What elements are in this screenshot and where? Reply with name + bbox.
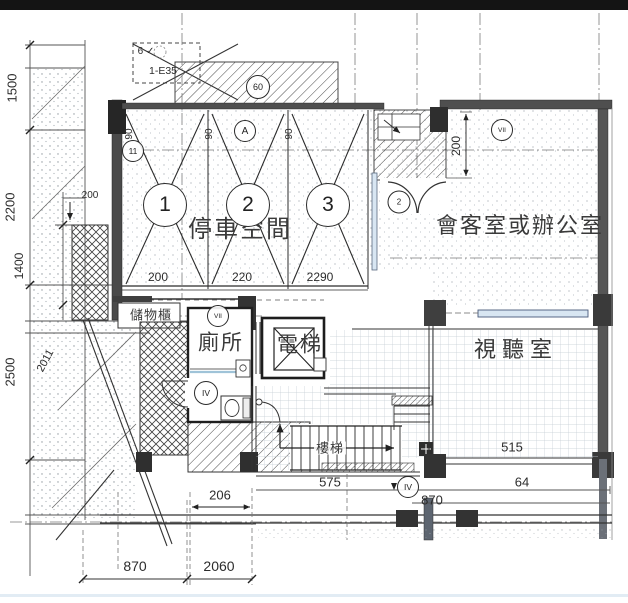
parking-space-3-bubble: 3 bbox=[306, 183, 350, 227]
room-label-office: 會客室或辦公室 bbox=[436, 215, 604, 237]
door-tag-bubble: 2 bbox=[388, 191, 411, 214]
grid-bubble-11-text: 11 bbox=[129, 146, 138, 156]
parking-space-3: 3 bbox=[322, 193, 334, 217]
grid-bubble-7-mid-text: VII bbox=[214, 313, 222, 320]
grid-bubble-4-toilet: IV bbox=[194, 381, 218, 405]
grid-bubble-4-toilet-text: IV bbox=[202, 388, 210, 398]
grid-bubble-7-top: VII bbox=[491, 119, 513, 141]
dim-1500: 1500 bbox=[6, 74, 19, 103]
room-label-stairs: 樓梯 bbox=[314, 442, 346, 455]
dim-parking-2: 220 bbox=[232, 271, 252, 283]
dim-206: 206 bbox=[207, 489, 233, 502]
grid-bubble-a: A bbox=[234, 120, 256, 142]
dim-575: 575 bbox=[319, 476, 341, 489]
note-check: 6 ✓ bbox=[138, 47, 155, 57]
grid-bubble-60-text: 60 bbox=[253, 82, 263, 92]
parking-space-1: 1 bbox=[159, 193, 171, 217]
dim-870: 870 bbox=[123, 559, 146, 573]
note-code: 1-E35 bbox=[149, 66, 177, 77]
dim-200-left: 200 bbox=[82, 191, 99, 201]
floorplan-canvas: 停車空間 會客室或辦公室 廁所 電梯 視聽室 儲物櫃 樓梯 6 ✓ 1-E35 … bbox=[0, 0, 628, 603]
grid-bubble-a-text: A bbox=[242, 126, 249, 137]
room-label-elevator: 電梯 bbox=[277, 335, 323, 356]
dim-870-right: 870 bbox=[421, 494, 443, 507]
bay-width-1: 90 bbox=[125, 128, 135, 139]
room-label-storage: 儲物櫃 bbox=[130, 309, 172, 322]
bay-width-2: 90 bbox=[205, 128, 215, 139]
parking-space-1-bubble: 1 bbox=[143, 183, 187, 227]
floorplan-linework bbox=[0, 0, 628, 603]
dim-64: 64 bbox=[515, 476, 529, 489]
dim-parking-1: 200 bbox=[148, 271, 168, 283]
grid-bubble-7-mid: VII bbox=[207, 305, 229, 327]
dim-1400: 1400 bbox=[13, 253, 25, 280]
grid-bubble-4-bottom-text: IV bbox=[404, 482, 412, 492]
door-tag-text: 2 bbox=[397, 198, 401, 207]
parking-space-2: 2 bbox=[242, 193, 254, 217]
grid-bubble-4-bottom: IV bbox=[397, 476, 419, 498]
parking-space-2-bubble: 2 bbox=[226, 183, 270, 227]
dim-515: 515 bbox=[501, 441, 523, 454]
dim-2060: 2060 bbox=[203, 559, 234, 573]
dim-2500: 2500 bbox=[4, 358, 17, 387]
grid-bubble-11: 11 bbox=[122, 140, 144, 162]
grid-bubble-60: 60 bbox=[246, 75, 270, 99]
dim-parking-3: 2290 bbox=[307, 271, 334, 283]
bay-width-3: 90 bbox=[285, 128, 295, 139]
dim-2200: 2200 bbox=[4, 193, 17, 222]
grid-bubble-7-top-text: VII bbox=[498, 127, 506, 134]
room-label-toilet: 廁所 bbox=[198, 333, 244, 354]
room-label-av-room: 視聽室 bbox=[474, 339, 558, 361]
dim-200-right: 200 bbox=[450, 136, 462, 156]
